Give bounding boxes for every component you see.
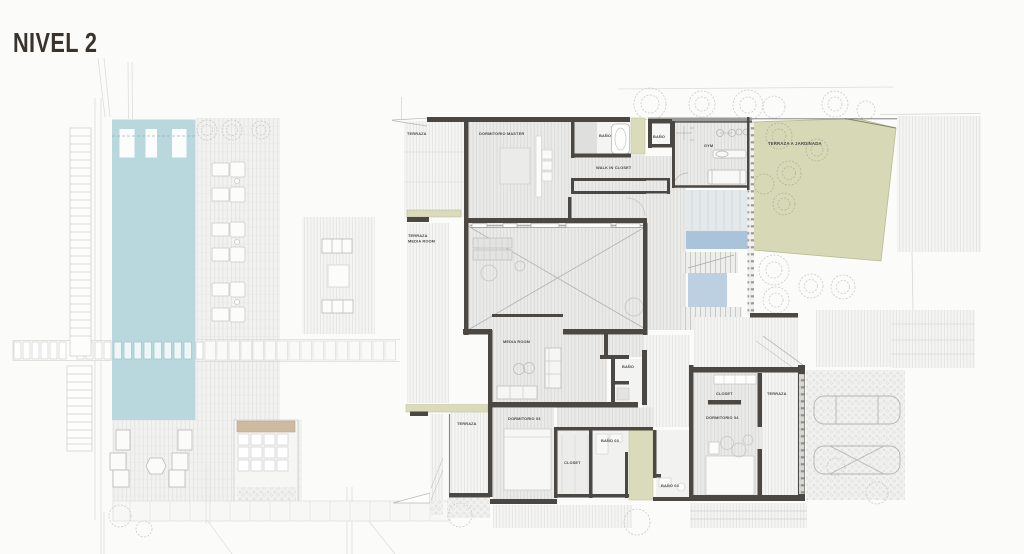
svg-text:BAÑO: BAÑO bbox=[653, 134, 665, 139]
svg-text:CLOSET: CLOSET bbox=[716, 391, 733, 396]
svg-text:DORMITORIO 04: DORMITORIO 04 bbox=[706, 415, 739, 420]
svg-text:BAÑO: BAÑO bbox=[599, 133, 611, 138]
svg-text:DORMITORIO 03: DORMITORIO 03 bbox=[508, 416, 541, 421]
svg-text:TERRAZA A JARDINADA: TERRAZA A JARDINADA bbox=[768, 141, 822, 146]
svg-text:CLOSET: CLOSET bbox=[564, 460, 581, 465]
svg-text:GYM: GYM bbox=[704, 143, 713, 148]
svg-text:BAÑO: BAÑO bbox=[622, 364, 634, 369]
svg-text:BAÑO 04: BAÑO 04 bbox=[661, 483, 680, 488]
svg-text:MEDIA ROOM: MEDIA ROOM bbox=[408, 239, 435, 244]
svg-text:MEDIA ROOM: MEDIA ROOM bbox=[503, 339, 530, 344]
svg-text:TERRAZA: TERRAZA bbox=[408, 233, 428, 238]
svg-text:BAÑO 03: BAÑO 03 bbox=[601, 438, 620, 443]
svg-text:WALK IN CLOSET: WALK IN CLOSET bbox=[596, 165, 632, 170]
svg-text:TERRAZA: TERRAZA bbox=[767, 391, 787, 396]
svg-text:TERRAZA: TERRAZA bbox=[457, 421, 477, 426]
svg-text:DORMITORIO MASTER: DORMITORIO MASTER bbox=[479, 131, 524, 136]
svg-text:TERRAZA: TERRAZA bbox=[407, 131, 427, 136]
